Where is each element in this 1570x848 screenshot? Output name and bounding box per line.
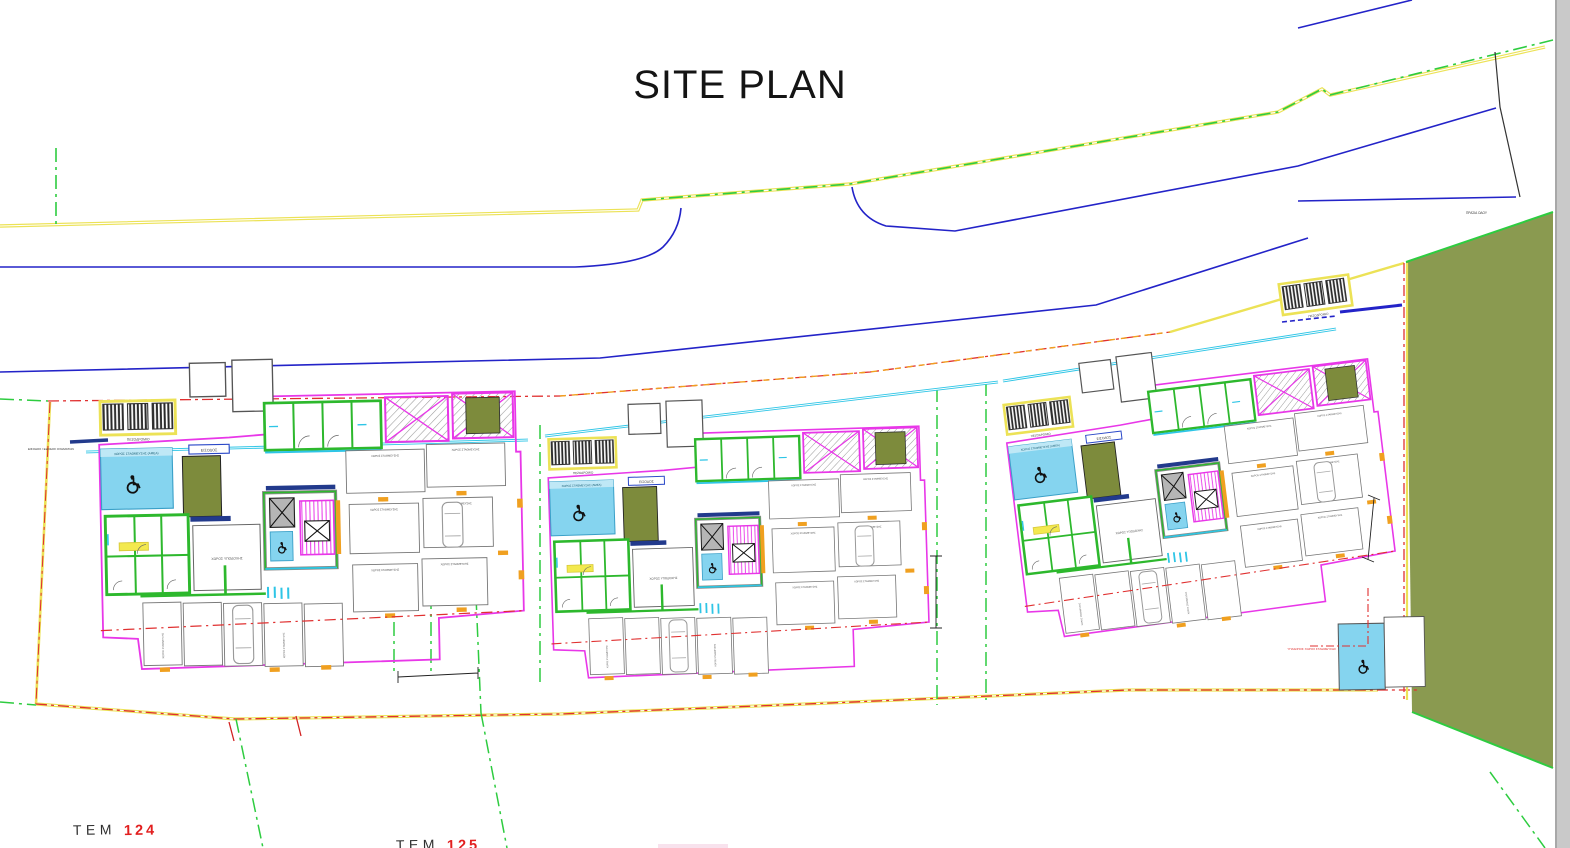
svg-text:ΤΕΜ: ΤΕΜ	[73, 821, 116, 838]
svg-text:ΤΕΜ: ΤΕΜ	[396, 836, 439, 848]
parcel-number: 125	[447, 838, 480, 848]
roadside-strip-label: ΠΡΑΣΙΑ ΟΔΟΥ	[1466, 211, 1488, 215]
site-plan-drawing: ΠΕΖΟΔΡΟΜΙΟ ΕΙΣΟΔΟΣ	[0, 0, 1570, 848]
svg-text:ΥΠΑΙΘΡΙΟΣ ΧΩΡΟΣ ΣΤΑΘΜΕΥΣΗΣ: ΥΠΑΙΘΡΙΟΣ ΧΩΡΟΣ ΣΤΑΘΜΕΥΣΗΣ	[1287, 647, 1336, 651]
parcel-label-124: ΤΕΜ 124	[73, 821, 158, 840]
sheet-title: SITE PLAN	[633, 63, 847, 107]
svg-text:ΕΙΣΟΔΟΣ / ΕΞΟΔΟΣ ΟΧΗΜΑΤΩΝ: ΕΙΣΟΔΟΣ / ΕΞΟΔΟΣ ΟΧΗΜΑΤΩΝ	[28, 447, 74, 451]
landscape-area	[1406, 212, 1553, 768]
parcel-number: 124	[124, 823, 157, 840]
page-edge-strip	[1556, 0, 1570, 848]
cutoff-annotation	[658, 844, 728, 848]
parcel-label-125: ΤΕΜ 125	[396, 836, 481, 848]
site-plan-sheet: ΠΕΖΟΔΡΟΜΙΟ ΕΙΣΟΔΟΣ	[0, 0, 1570, 848]
accessible-stall-southeast	[1338, 616, 1425, 689]
